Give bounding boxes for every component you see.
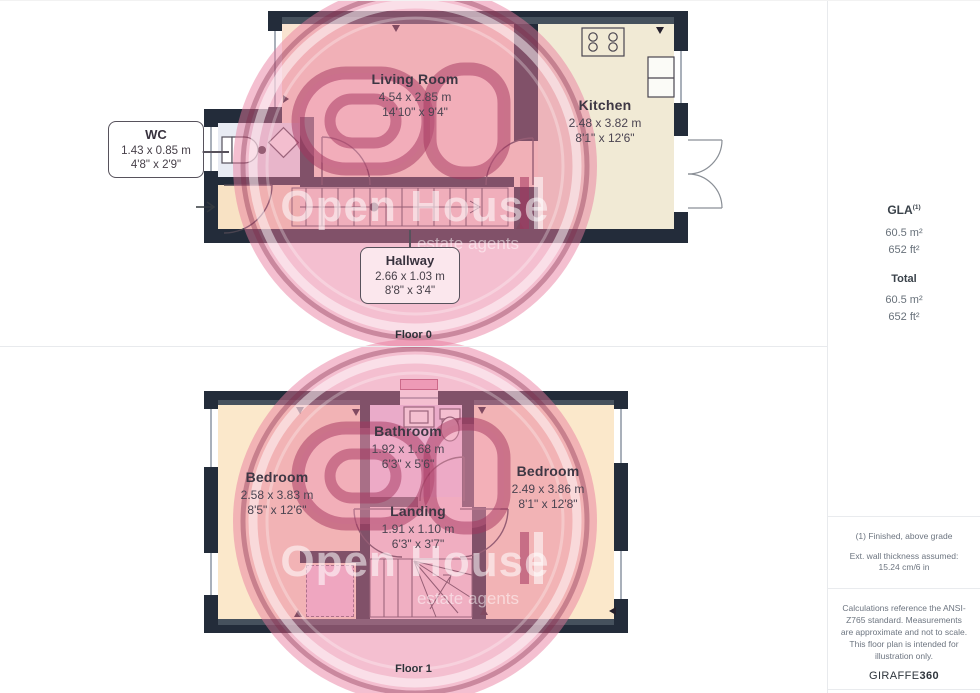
kitchen-door-gap: [674, 136, 688, 212]
footnote-finished: (1) Finished, above grade: [840, 531, 968, 543]
bathroom-bottom-wall: [360, 497, 418, 507]
floorplan-page: Open House estate agents Open House esta…: [0, 0, 980, 693]
gla-value-ft2: 652 ft²: [828, 242, 980, 259]
kitchen-window: [674, 51, 688, 103]
giraffe360-logo: GIRAFFE360: [828, 670, 980, 682]
gla-value-m2: 60.5 m²: [828, 225, 980, 242]
stairs-floor1-floor: [370, 559, 472, 619]
brand-360: 360: [919, 670, 939, 682]
gla-heading: GLA(1): [828, 203, 980, 217]
footnotes-section: (1) Finished, above grade Ext. wall thic…: [828, 516, 980, 588]
floors-divider: [0, 346, 827, 347]
entry-floor: [218, 185, 300, 229]
brand-giraffe: GIRAFFE: [869, 670, 919, 682]
wc-side-wall-stub: [300, 117, 314, 179]
cupboard-top-wall: [300, 551, 370, 563]
french-doors: [688, 140, 722, 208]
total-value-m2: 60.5 m²: [828, 292, 980, 309]
wc-callout: WC 1.43 x 0.85 m 4'8" x 2'9": [108, 121, 204, 178]
hallway-floor: [282, 187, 514, 229]
bathroom-floor: [370, 405, 462, 497]
summary-sidebar: GLA(1) 60.5 m² 652 ft² Total 60.5 m² 652…: [827, 1, 980, 693]
cupboard-right-wall: [356, 563, 370, 619]
bedroom-left-window-lower: [204, 553, 218, 595]
hallway-callout-leader: [409, 230, 411, 248]
living-room-floor: [282, 24, 514, 177]
hallway-stair-wall: [282, 177, 514, 187]
bedroom-left-window-upper: [204, 409, 218, 467]
bedroom-right-window-upper: [614, 409, 628, 463]
disclaimer-text: Calculations reference the ANSI-Z765 sta…: [840, 603, 968, 662]
gla-label: GLA: [887, 203, 912, 217]
floor1-label: Floor 1: [0, 663, 827, 675]
bathroom-window: [400, 391, 438, 405]
footnote-wall-thickness: Ext. wall thickness assumed: 15.24 cm/6 …: [840, 551, 968, 575]
total-value-ft2: 652 ft²: [828, 309, 980, 326]
area-summary: GLA(1) 60.5 m² 652 ft² Total 60.5 m² 652…: [828, 203, 980, 326]
floor0-label: Floor 0: [0, 329, 827, 341]
stairs-right-wall: [472, 507, 486, 619]
hallway-callout: Hallway 2.66 x 1.03 m 8'8" x 3'4": [360, 247, 460, 304]
bedroom-right-floor: [474, 405, 614, 619]
wc-window: [204, 127, 218, 171]
wc-entry-divider-wall: [218, 177, 300, 185]
bathroom-right-wall: [462, 405, 474, 507]
disclaimer-section: Calculations reference the ANSI-Z765 sta…: [828, 588, 980, 690]
bedroom-right-window-lower: [614, 551, 628, 599]
bathroom-radiator: [400, 379, 438, 390]
gla-footnote-marker: (1): [913, 204, 921, 211]
wc-callout-leader: [202, 151, 229, 153]
bathroom-left-wall: [360, 405, 370, 507]
kitchen-floor: [538, 24, 674, 229]
kitchen-partition-wall-lower: [514, 187, 538, 229]
kitchen-partition-wall: [514, 24, 538, 141]
total-heading: Total: [828, 273, 980, 285]
kitchen-doorway-gap: [514, 141, 538, 187]
wc-floor: [218, 123, 300, 177]
floor1-bottom-wall-band: [218, 619, 614, 625]
cupboard: [306, 565, 354, 617]
floor0-top-wall-band: [282, 17, 674, 24]
plans-area: Open House estate agents Open House esta…: [0, 1, 827, 693]
living-room-window: [268, 31, 282, 107]
